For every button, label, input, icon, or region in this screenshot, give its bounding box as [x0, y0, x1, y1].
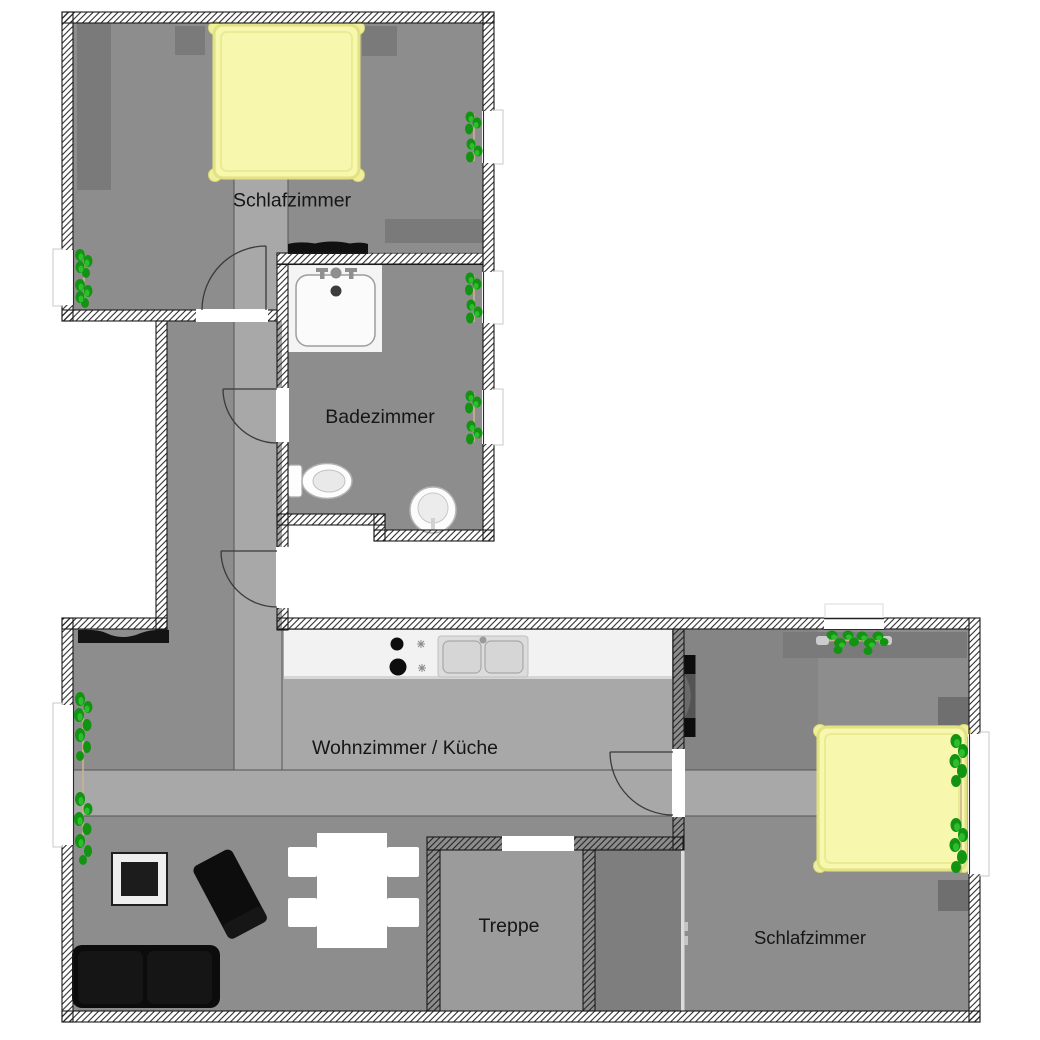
svg-text:Wohnzimmer / Küche: Wohnzimmer / Küche — [312, 737, 498, 759]
svg-text:Badezimmer: Badezimmer — [325, 406, 435, 428]
svg-text:Treppe: Treppe — [478, 915, 539, 937]
svg-text:Schlafzimmer: Schlafzimmer — [754, 927, 866, 948]
svg-text:Schlafzimmer: Schlafzimmer — [233, 190, 352, 212]
